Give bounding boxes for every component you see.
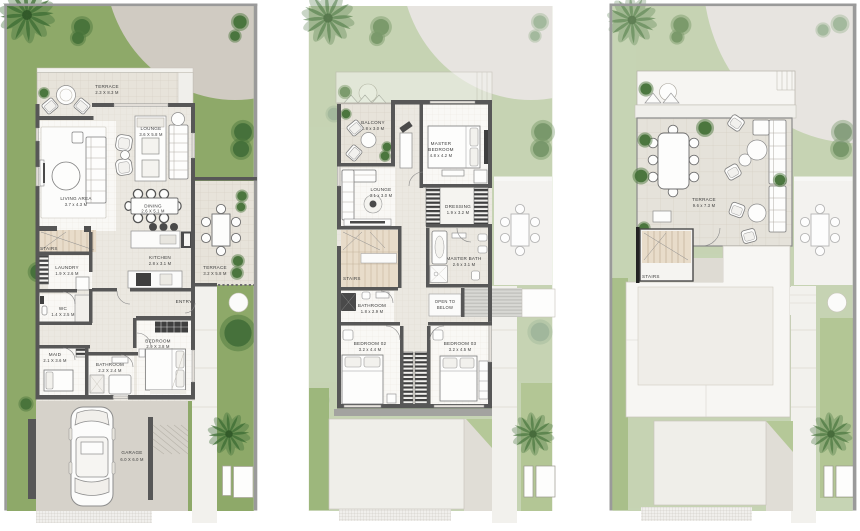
- svg-text:TERRACE: TERRACE: [203, 265, 227, 270]
- svg-text:2.9 X 3.8 M: 2.9 X 3.8 M: [146, 344, 170, 349]
- svg-text:WC: WC: [59, 306, 68, 311]
- svg-text:OPEN TO: OPEN TO: [435, 299, 456, 304]
- svg-text:LOUNGE: LOUNGE: [371, 187, 392, 192]
- svg-text:LIVING AREA: LIVING AREA: [60, 196, 92, 201]
- svg-text:2.1 X 3.6 M: 2.1 X 3.6 M: [43, 358, 67, 363]
- svg-text:BEDROOM 02: BEDROOM 02: [354, 341, 387, 346]
- svg-text:2.6 x 3.1 M: 2.6 x 3.1 M: [453, 262, 476, 267]
- svg-text:2.3 X 8.3 M: 2.3 X 8.3 M: [95, 90, 119, 95]
- svg-text:1.8 x 2.9 M: 1.8 x 2.9 M: [361, 309, 384, 314]
- svg-text:3.1 x 3.0 M: 3.1 x 3.0 M: [370, 193, 393, 198]
- svg-text:TERRACE: TERRACE: [95, 84, 119, 89]
- svg-text:3.6 X 5.8 M: 3.6 X 5.8 M: [139, 132, 163, 137]
- svg-text:BALCONY: BALCONY: [361, 120, 385, 125]
- svg-text:1.9 x 3.2 M: 1.9 x 3.2 M: [447, 210, 470, 215]
- svg-text:MAID: MAID: [49, 352, 62, 357]
- svg-text:STAIRS: STAIRS: [40, 246, 58, 251]
- svg-text:STAIRS: STAIRS: [642, 274, 660, 279]
- svg-text:KITCHEN: KITCHEN: [149, 255, 171, 260]
- svg-text:BELOW: BELOW: [437, 305, 453, 310]
- svg-text:BEDROOM: BEDROOM: [428, 147, 454, 152]
- svg-text:DRESSING: DRESSING: [445, 204, 471, 209]
- svg-text:BEDROOM: BEDROOM: [145, 339, 171, 344]
- svg-text:GARAGE: GARAGE: [121, 450, 142, 455]
- svg-text:6.0 X 6.0 M: 6.0 X 6.0 M: [120, 457, 144, 462]
- svg-text:BATHROOM: BATHROOM: [358, 303, 386, 308]
- svg-text:MASTER: MASTER: [431, 141, 452, 146]
- svg-text:LOUNGE: LOUNGE: [141, 126, 162, 131]
- svg-text:ENTRY: ENTRY: [176, 299, 193, 304]
- svg-text:3.2 x 4.5 M: 3.2 x 4.5 M: [449, 347, 472, 352]
- svg-text:TERRACE: TERRACE: [692, 197, 716, 202]
- svg-text:MASTER BATH: MASTER BATH: [446, 256, 481, 261]
- svg-text:9.6 x 7.3 M: 9.6 x 7.3 M: [693, 203, 716, 208]
- svg-text:LAUNDRY: LAUNDRY: [55, 265, 79, 270]
- svg-text:3.2 X 5.8 M: 3.2 X 5.8 M: [203, 271, 227, 276]
- svg-text:2.6 X 5.1 M: 2.6 X 5.1 M: [141, 209, 165, 214]
- svg-text:2.2 X 2.4 M: 2.2 X 2.4 M: [98, 368, 122, 373]
- svg-text:4.8 x 4.2 M: 4.8 x 4.2 M: [430, 153, 453, 158]
- svg-text:2.8 x 3.1 M: 2.8 x 3.1 M: [149, 261, 172, 266]
- svg-text:3.7 x 4.3 M: 3.7 x 4.3 M: [65, 202, 88, 207]
- svg-text:1.9 X 2.6 M: 1.9 X 2.6 M: [55, 271, 79, 276]
- svg-text:1.4 X 2.5 M: 1.4 X 2.5 M: [51, 312, 75, 317]
- svg-text:BEDROOM 03: BEDROOM 03: [444, 341, 477, 346]
- svg-text:2.8 x 3.0 M: 2.8 x 3.0 M: [362, 126, 385, 131]
- svg-text:STAIRS: STAIRS: [343, 276, 361, 281]
- svg-text:3.2 x 4.4 M: 3.2 x 4.4 M: [359, 347, 382, 352]
